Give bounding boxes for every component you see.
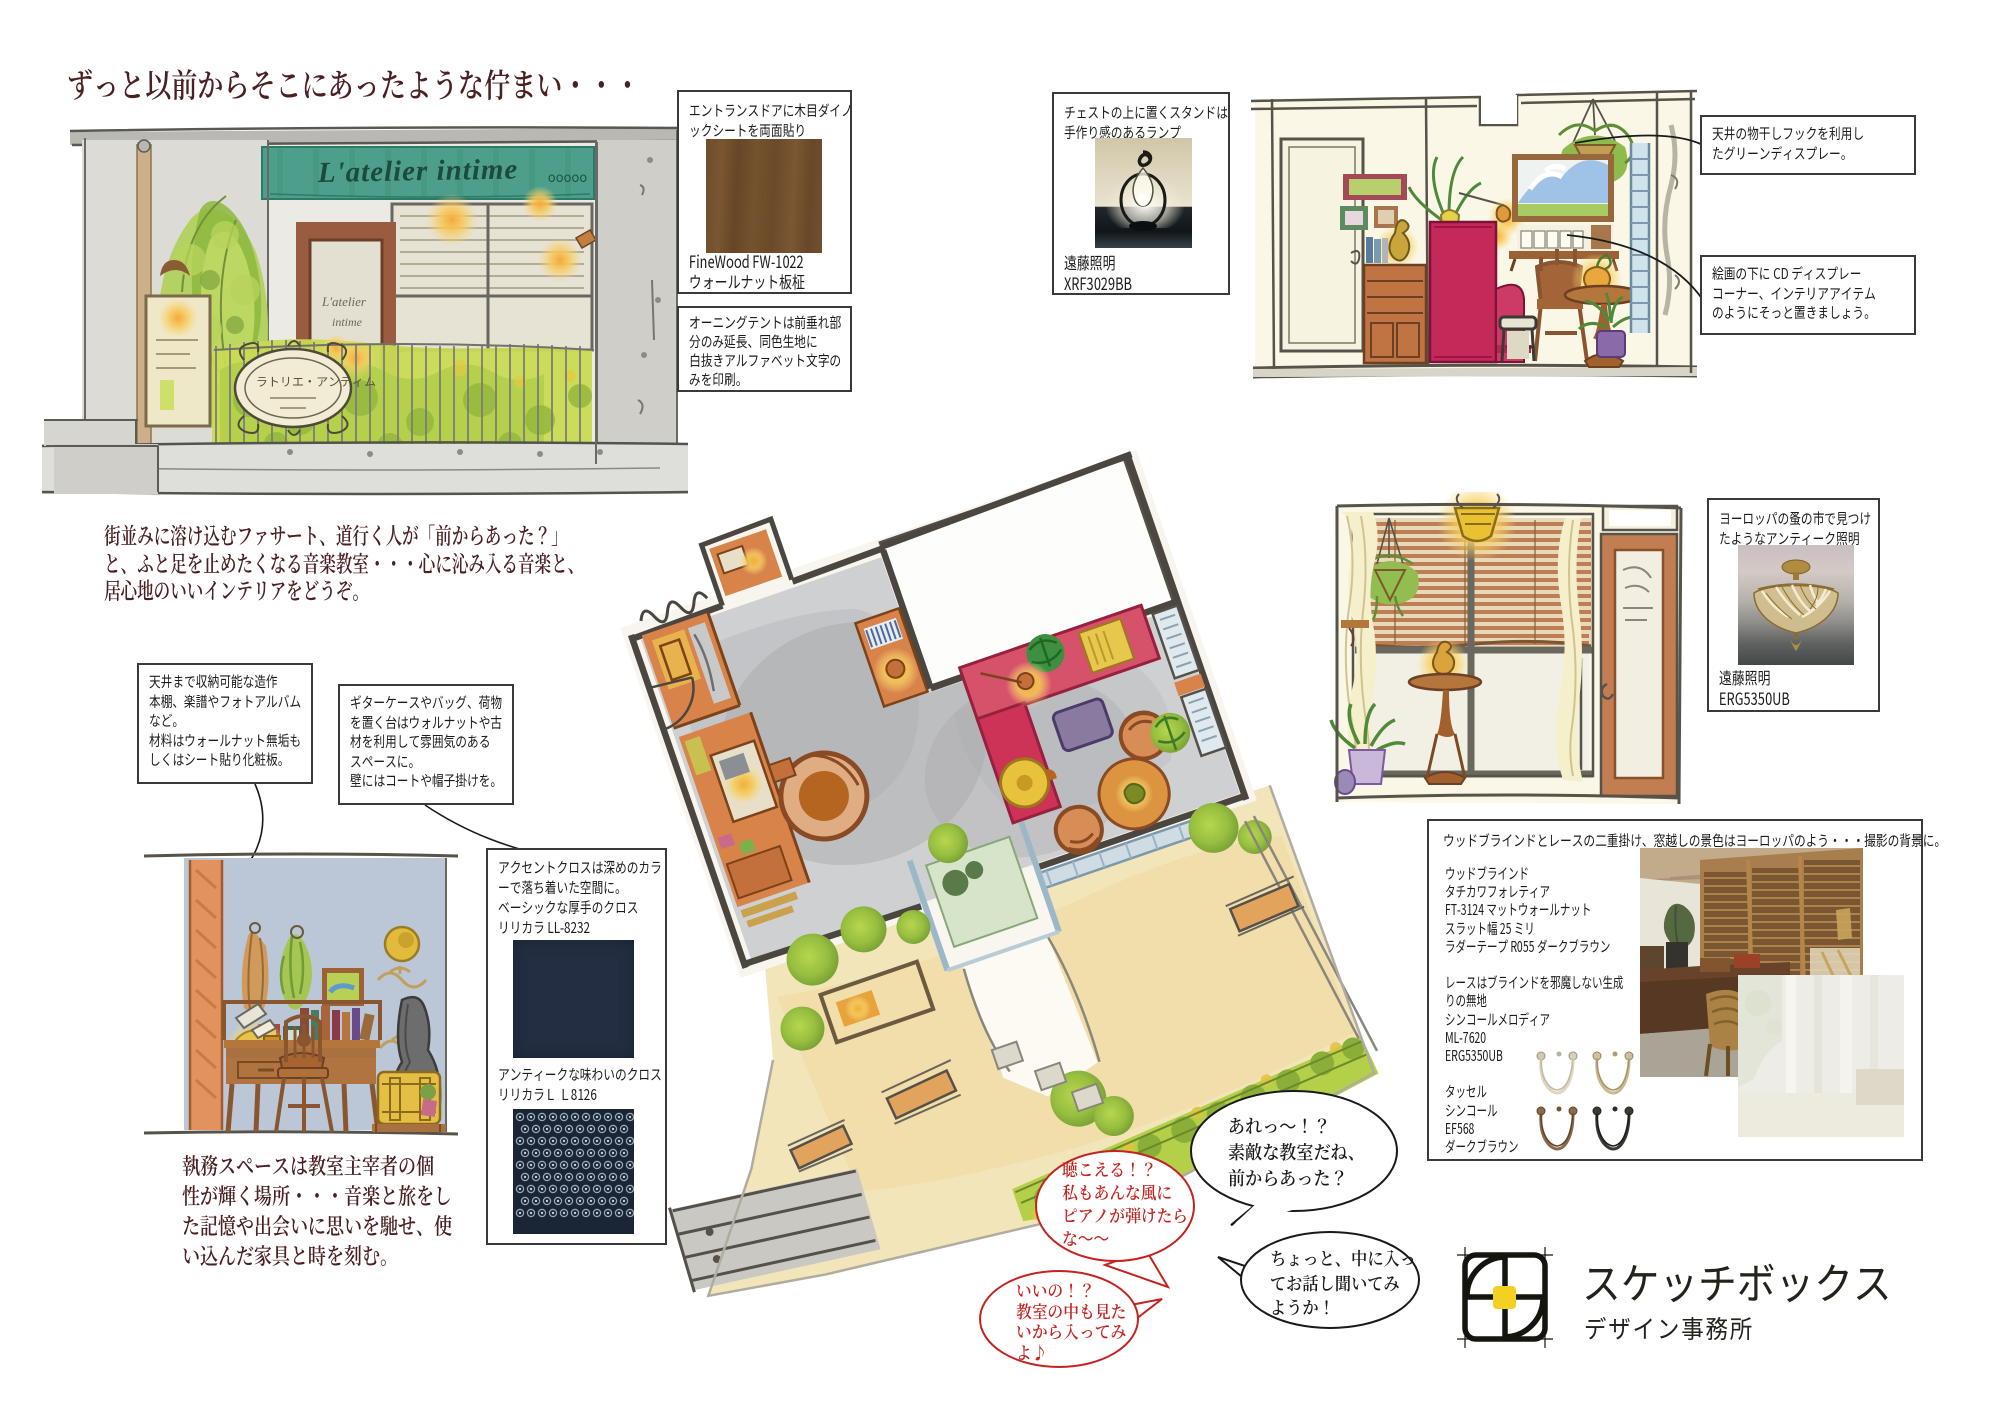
svg-text:ooooo: ooooo	[548, 167, 587, 186]
svg-text:L'atelier intime: L'atelier intime	[317, 154, 519, 190]
svg-text:L'atelier: L'atelier	[321, 294, 367, 309]
svg-text:ラトリエ・アンティム: ラトリエ・アンティム	[256, 373, 376, 390]
svg-text:intime: intime	[332, 315, 363, 329]
